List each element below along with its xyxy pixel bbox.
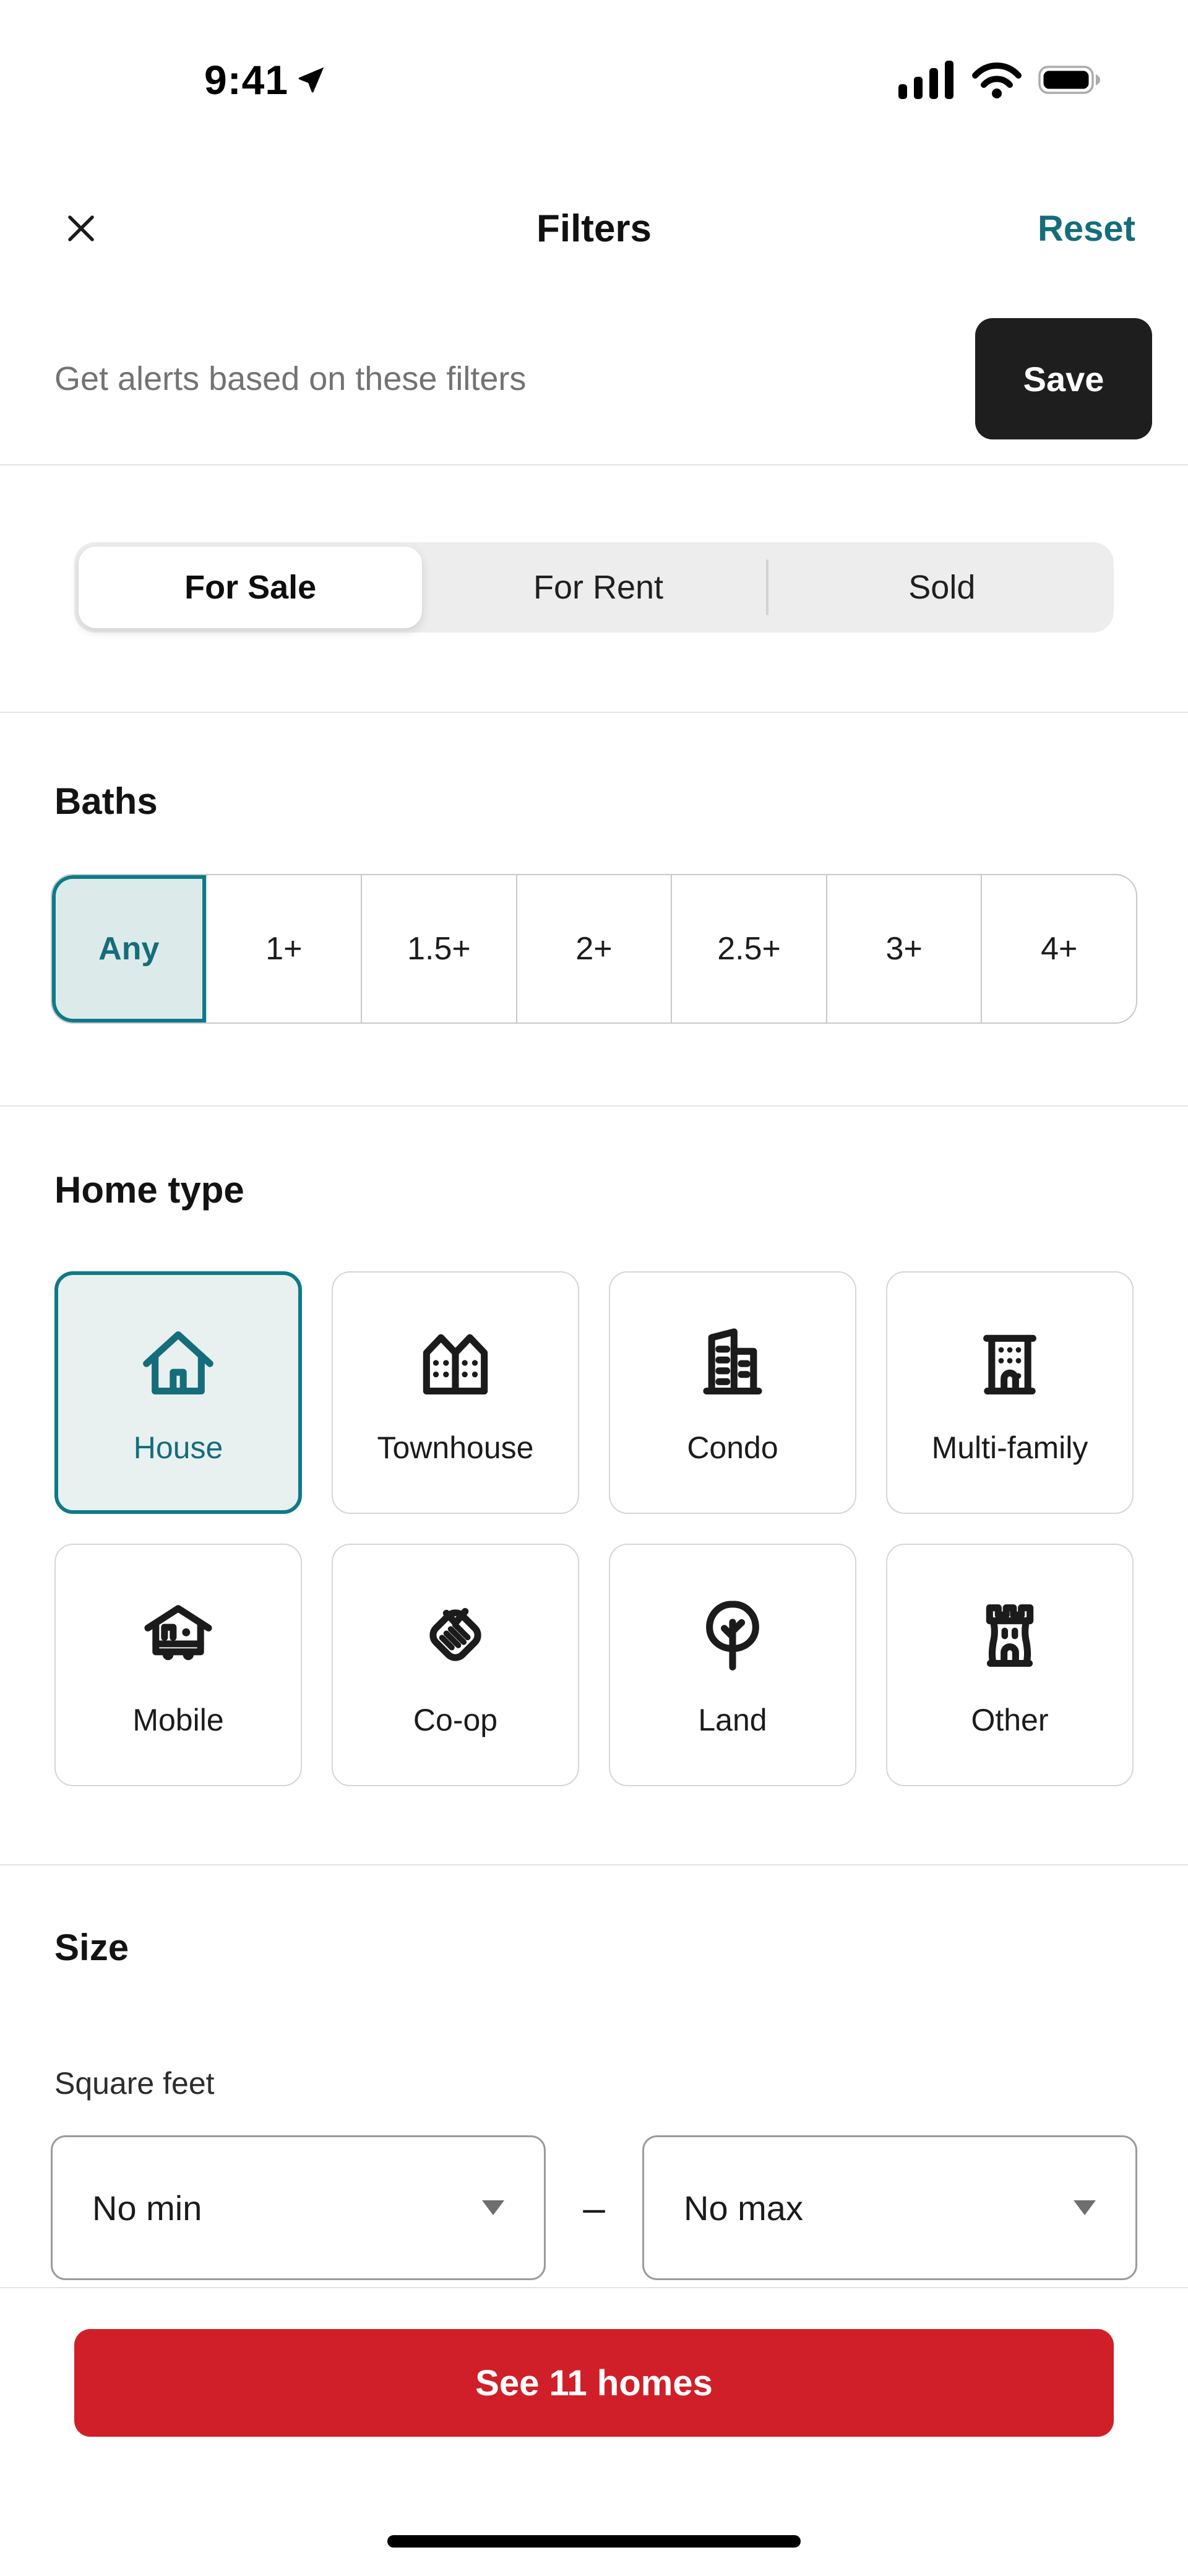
home-indicator[interactable] [387, 2535, 801, 2548]
home-type-card-other[interactable]: Other [886, 1544, 1134, 1786]
divider [0, 1105, 1188, 1107]
listing-status-segmented-control: For Sale For Rent Sold [74, 542, 1114, 633]
home-type-label: Multi-family [932, 1430, 1088, 1466]
baths-option-3plus[interactable]: 3+ [827, 875, 983, 1022]
home-type-card-house[interactable]: House [54, 1271, 302, 1514]
home-type-label: Mobile [132, 1702, 223, 1738]
home-type-label: Co-op [413, 1702, 497, 1738]
co-op-icon [412, 1592, 499, 1679]
segment-for-sale[interactable]: For Sale [79, 547, 422, 628]
max-sqft-select[interactable]: No max [642, 2135, 1137, 2280]
land-icon [689, 1592, 776, 1679]
alert-row: Get alerts based on these filters Save [0, 318, 1188, 439]
alert-message: Get alerts based on these filters [54, 360, 526, 398]
home-type-label: Condo [687, 1430, 778, 1466]
cellular-signal-icon [898, 61, 955, 99]
baths-option-1-5plus[interactable]: 1.5+ [362, 875, 517, 1022]
close-icon[interactable] [62, 209, 100, 248]
location-arrow-icon [295, 63, 328, 97]
max-sqft-value: No max [684, 2188, 803, 2228]
chevron-down-icon [1074, 2200, 1096, 2215]
footer-bar: See 11 homes [0, 2287, 1188, 2576]
house-icon [135, 1320, 222, 1406]
home-type-label: Townhouse [377, 1430, 534, 1466]
home-type-label: Other [971, 1702, 1048, 1738]
battery-icon [1038, 66, 1101, 94]
baths-option-any[interactable]: Any [52, 875, 207, 1022]
divider [0, 1864, 1188, 1865]
segment-separator [766, 560, 768, 615]
baths-option-group: Any 1+ 1.5+ 2+ 2.5+ 3+ 4+ [51, 874, 1137, 1024]
home-type-label: House [134, 1430, 223, 1466]
home-type-label: Land [698, 1702, 767, 1738]
page-title: Filters [0, 207, 1188, 251]
save-button[interactable]: Save [975, 318, 1152, 439]
chevron-down-icon [482, 2200, 504, 2215]
baths-option-2-5plus[interactable]: 2.5+ [672, 875, 827, 1022]
home-type-card-mobile[interactable]: Mobile [54, 1544, 302, 1786]
status-bar: 9:41 [0, 0, 1188, 120]
baths-option-1plus[interactable]: 1+ [207, 875, 363, 1022]
square-feet-range-row: No min – No max [51, 2135, 1137, 2280]
see-homes-button[interactable]: See 11 homes [74, 2329, 1114, 2437]
mobile-home-icon [135, 1592, 222, 1679]
min-sqft-value: No min [92, 2188, 202, 2228]
divider [0, 464, 1188, 465]
divider [0, 712, 1188, 713]
other-icon [966, 1592, 1053, 1679]
square-feet-label: Square feet [54, 2065, 1188, 2102]
segment-sold[interactable]: Sold [770, 542, 1114, 633]
filters-header: Filters Reset [0, 194, 1188, 262]
reset-button[interactable]: Reset [1038, 208, 1135, 249]
status-time: 9:41 [204, 56, 288, 103]
home-type-grid: House Townhouse [54, 1271, 1134, 1786]
wifi-icon [970, 61, 1023, 99]
multi-family-icon [966, 1320, 1053, 1406]
home-type-card-condo[interactable]: Condo [609, 1271, 856, 1514]
home-type-card-multi-family[interactable]: Multi-family [886, 1271, 1134, 1514]
min-sqft-select[interactable]: No min [51, 2135, 546, 2280]
home-type-card-townhouse[interactable]: Townhouse [332, 1271, 579, 1514]
condo-icon [689, 1320, 776, 1406]
home-type-card-land[interactable]: Land [609, 1544, 856, 1786]
townhouse-icon [412, 1320, 499, 1406]
home-type-card-co-op[interactable]: Co-op [332, 1544, 579, 1786]
range-separator: – [583, 2185, 605, 2231]
baths-section-title: Baths [54, 776, 1188, 827]
size-section-title: Size [54, 1922, 1188, 1973]
baths-option-4plus[interactable]: 4+ [982, 875, 1136, 1022]
home-type-section-title: Home type [54, 1165, 1188, 1216]
baths-option-2plus[interactable]: 2+ [517, 875, 673, 1022]
segment-for-rent[interactable]: For Rent [426, 542, 770, 633]
